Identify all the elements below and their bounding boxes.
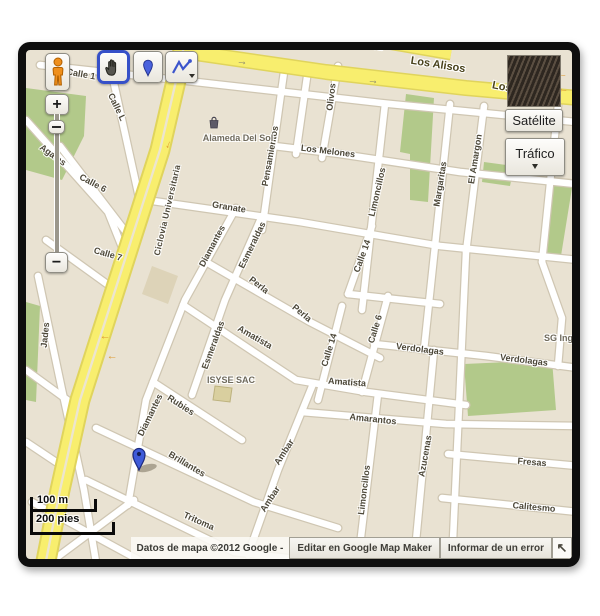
draw-line-tool-button[interactable]	[165, 51, 198, 83]
attribution-bar: Datos de mapa ©2012 Google - Editar en G…	[131, 537, 572, 559]
traffic-dropdown-icon	[532, 164, 538, 169]
zoom-slider-track[interactable]	[54, 114, 60, 258]
map-frame: Calle 1Calle LAgatasCalle 6Calle 7JadesC…	[18, 42, 580, 567]
expand-arrow-button[interactable]: ↖	[552, 537, 572, 559]
line-tool-dropdown-icon	[189, 74, 195, 78]
shopping-bag-icon[interactable]	[208, 116, 220, 129]
one-way-arrow-icon: →	[236, 56, 248, 68]
one-way-arrow-icon: →	[107, 353, 118, 364]
map-marker[interactable]	[125, 438, 159, 474]
pegman-icon	[50, 57, 66, 87]
building-block	[142, 266, 178, 304]
traffic-button-label: Tráfico	[515, 146, 554, 161]
zoom-out-label: −	[52, 254, 61, 272]
map-copyright: Datos de mapa ©2012 Google -	[131, 537, 290, 559]
zoom-in-button[interactable]: +	[45, 94, 69, 115]
map-canvas[interactable]: Calle 1Calle LAgatasCalle 6Calle 7JadesC…	[26, 50, 572, 559]
hand-icon	[103, 56, 124, 78]
satellite-button-label: Satélite	[512, 113, 555, 128]
zoom-in-label: +	[52, 96, 61, 114]
street-label: ISYSE SAC	[207, 375, 255, 385]
satellite-preview-thumbnail[interactable]	[507, 55, 561, 107]
pan-hand-tool-button[interactable]	[97, 50, 130, 84]
poi-building	[213, 386, 232, 402]
one-way-arrow-icon: →	[100, 333, 111, 344]
place-marker-tool-button[interactable]	[133, 51, 163, 83]
street-label: SG Inge	[544, 333, 578, 343]
screenshot: Calle 1Calle LAgatasCalle 6Calle 7JadesC…	[0, 0, 600, 616]
zoom-out-button[interactable]: −	[45, 252, 68, 273]
marker-tool-icon	[140, 56, 156, 78]
street-label: Alameda Del Sol	[203, 133, 274, 143]
edit-map-maker-button[interactable]: Editar en Google Map Maker	[289, 537, 439, 559]
zoom-slider-handle[interactable]	[48, 120, 65, 134]
one-way-arrow-icon: →	[367, 75, 379, 87]
traffic-button[interactable]: Tráfico	[505, 138, 565, 176]
satellite-button[interactable]: Satélite	[505, 109, 563, 132]
report-error-button[interactable]: Informar de un error	[440, 537, 552, 559]
zoom-handle-bar	[52, 126, 61, 128]
pegman-control[interactable]	[45, 53, 70, 91]
